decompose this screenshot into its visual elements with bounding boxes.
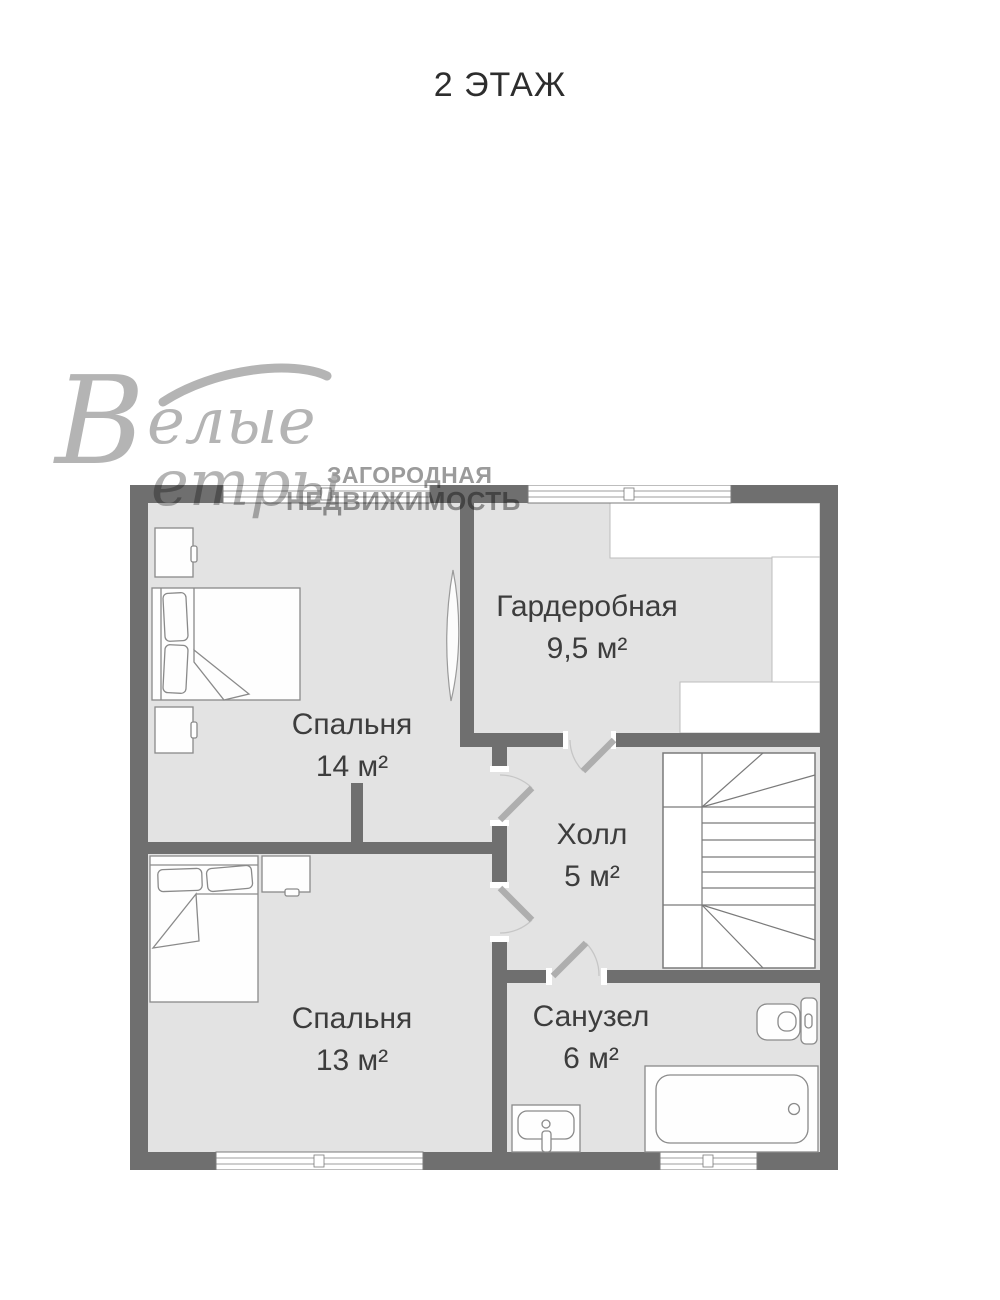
- nightstand-top: [155, 528, 193, 577]
- bathtub: [645, 1066, 818, 1152]
- nightstand-top-handle: [191, 546, 197, 562]
- floor-plan-page: 2 ЭТАЖ: [0, 0, 1000, 1300]
- label-bedroom-14: Спальня 14 м²: [292, 704, 413, 788]
- dresser: [262, 856, 310, 892]
- room-name: Гардеробная: [496, 586, 677, 628]
- nightstand-bottom: [155, 707, 193, 753]
- nightstand-bottom-handle: [191, 722, 197, 738]
- window-bedroom14: [223, 485, 430, 503]
- window-bedroom13: [216, 1152, 423, 1170]
- room-name: Спальня: [292, 704, 413, 746]
- room-area: 6 м²: [533, 1038, 650, 1080]
- double-bed-13: [150, 856, 258, 1002]
- label-bathroom: Санузел 6 м²: [533, 996, 650, 1080]
- window-bathroom: [660, 1152, 757, 1170]
- room-area: 9,5 м²: [496, 628, 677, 670]
- wall-wardrobe-hall: [460, 733, 820, 747]
- wall-stub: [351, 783, 363, 842]
- room-area: 13 м²: [292, 1040, 413, 1082]
- room-name: Холл: [557, 814, 628, 856]
- toilet: [757, 998, 817, 1044]
- label-bedroom-13: Спальня 13 м²: [292, 998, 413, 1082]
- room-name: Спальня: [292, 998, 413, 1040]
- window-wardrobe: [528, 485, 731, 503]
- floor-plan: [130, 485, 838, 1170]
- room-area: 5 м²: [557, 856, 628, 898]
- label-wardrobe: Гардеробная 9,5 м²: [496, 586, 677, 670]
- room-area: 14 м²: [292, 746, 413, 788]
- room-name: Санузел: [533, 996, 650, 1038]
- wall-bedroom14-wardrobe: [460, 503, 474, 747]
- logo-word-1: елые: [147, 390, 316, 454]
- wall-hall-bathroom: [492, 970, 820, 983]
- double-bed-14: [152, 588, 300, 700]
- staircase: [663, 753, 815, 968]
- sink: [512, 1105, 580, 1152]
- logo-initial: В: [55, 360, 145, 482]
- label-hall: Холл 5 м²: [557, 814, 628, 898]
- wall-left: [130, 503, 148, 1152]
- wall-right: [820, 503, 838, 1152]
- page-title: 2 ЭТАЖ: [0, 66, 1000, 105]
- wall-bedrooms-divider: [130, 842, 492, 854]
- dresser-handle: [285, 889, 299, 896]
